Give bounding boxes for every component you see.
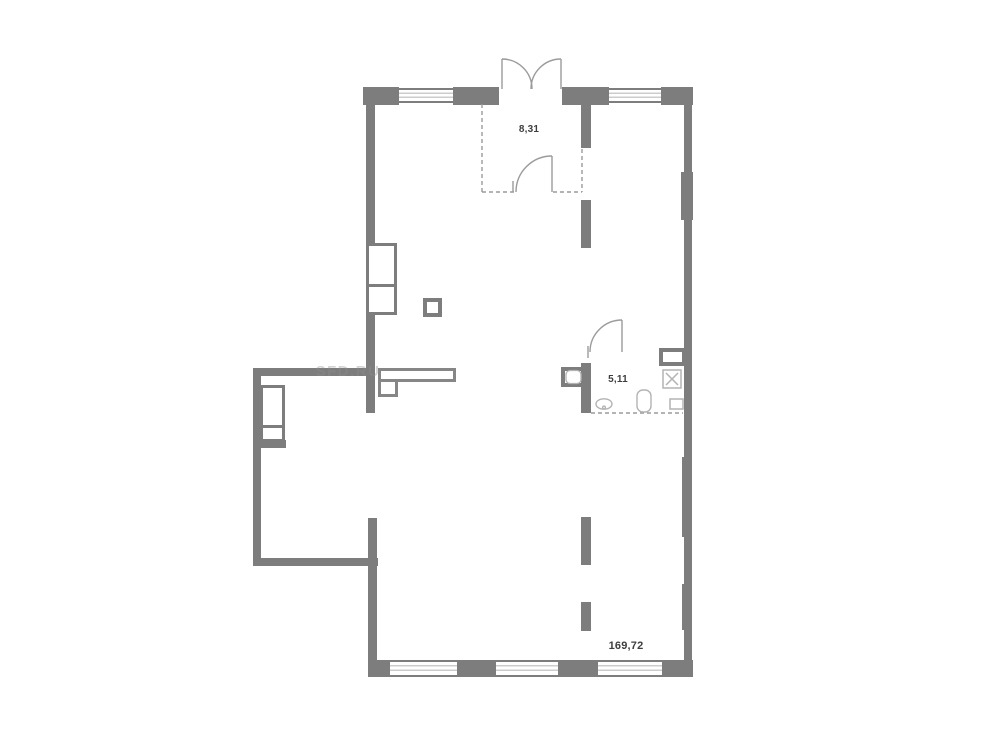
area-label-entry-vestibule: 8,31 xyxy=(504,124,554,135)
vestibule-door xyxy=(513,156,552,192)
entry-double-door xyxy=(502,59,561,89)
bathroom-door xyxy=(588,320,622,358)
vestibule-dashed-outline xyxy=(482,104,582,192)
bathroom-sink-oval xyxy=(596,399,612,409)
vent-shaft-x-box xyxy=(663,370,681,388)
area-label-total: 169,72 xyxy=(594,640,658,652)
watermark-text: SFD.RU xyxy=(300,363,396,380)
plan-linework xyxy=(0,0,1000,750)
floor-plan: 8,31 5,11 169,72 SFD.RU xyxy=(0,0,1000,750)
toilet xyxy=(637,390,651,412)
small-fixture-box xyxy=(670,399,683,409)
sink-cabinet-bowl xyxy=(566,371,581,384)
area-label-bathroom: 5,11 xyxy=(593,374,643,385)
